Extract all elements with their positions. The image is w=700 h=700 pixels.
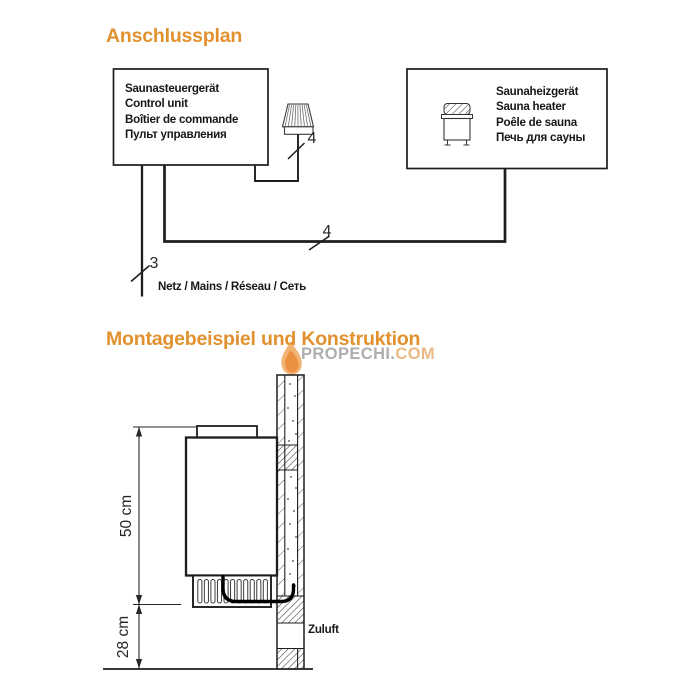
arrow-up-top <box>136 427 142 437</box>
wall-section <box>276 375 305 669</box>
section-title-connection: Anschlussplan <box>106 25 242 48</box>
wall-batten-upper <box>277 445 298 470</box>
watermark-text-orange: COM <box>395 345 435 363</box>
heater-unit-label-ru: Печь для сауны <box>496 130 585 145</box>
dimension-label-50cm: 50 cm <box>118 495 136 537</box>
arrow-down-floor <box>136 659 142 669</box>
cable-number-4-heater: 4 <box>323 223 332 241</box>
arrow-up-mid <box>136 605 142 615</box>
cable-number-3: 3 <box>150 255 159 273</box>
heater-unit-label-en: Sauna heater <box>496 99 585 114</box>
heater-unit-label-de: Saunaheizgerät <box>496 84 585 99</box>
control-unit-label-fr: Boîtier de commande <box>125 112 238 127</box>
watermark: PROPECHI.COM <box>301 345 435 364</box>
sauna-heater-icon <box>442 104 473 146</box>
control-unit-label-ru: Пульт управления <box>125 127 238 142</box>
cable-slash-4-light <box>288 143 305 159</box>
heater-unit-labels: Saunaheizgerät Sauna heater Poêle de sau… <box>496 84 585 146</box>
wall-batten-bottom <box>277 649 304 670</box>
cable-number-4-light: 4 <box>308 130 317 148</box>
heater-body <box>186 438 277 576</box>
heater-unit-label-fr: Poêle de sauna <box>496 115 585 130</box>
dimension-label-28cm: 28 cm <box>115 616 133 658</box>
arrow-down-mid <box>136 595 142 605</box>
heater-cable-wire <box>165 165 506 242</box>
control-unit-label-de: Saunasteuergerät <box>125 81 238 96</box>
mains-label: Netz / Mains / Réseau / Сеть <box>158 280 306 293</box>
watermark-text-gray: PROPECHI. <box>301 345 395 363</box>
air-supply-label: Zuluft <box>308 623 339 636</box>
control-unit-labels: Saunasteuergerät Control unit Boîtier de… <box>125 81 238 143</box>
heater-top-cap <box>197 426 257 438</box>
manual-page: Anschlussplan Saunasteuergerät Control u… <box>0 0 700 700</box>
cable-slash-3 <box>131 266 150 282</box>
control-unit-label-en: Control unit <box>125 96 238 111</box>
